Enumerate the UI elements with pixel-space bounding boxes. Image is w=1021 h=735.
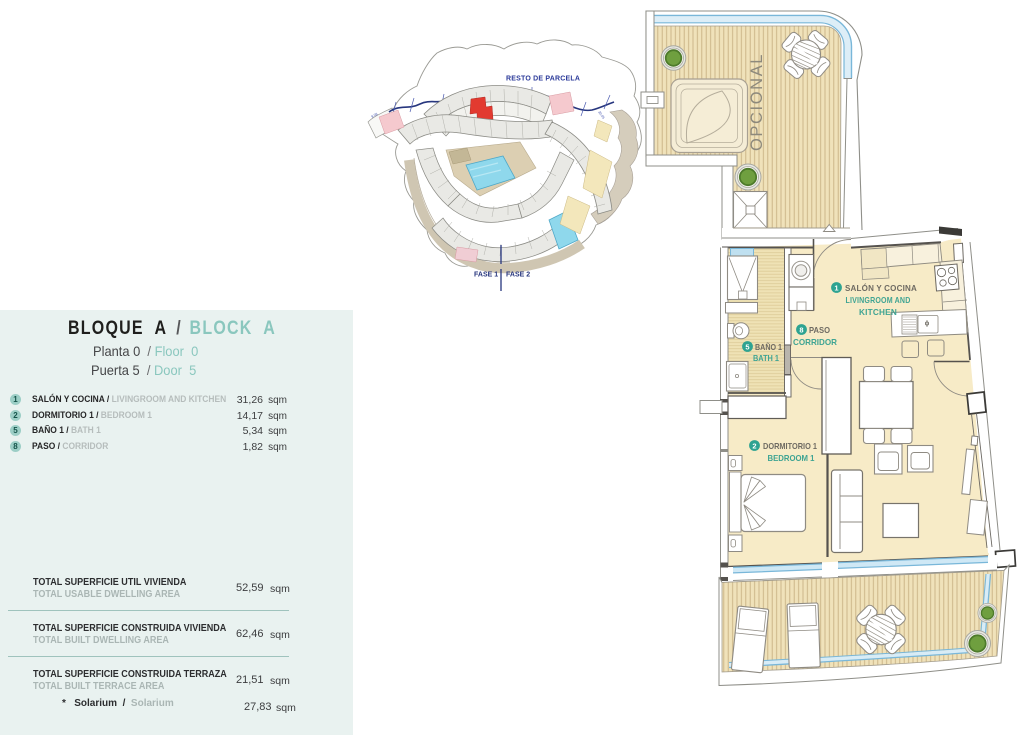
svg-text:8: 8 — [799, 325, 803, 334]
svg-text:5: 5 — [745, 342, 749, 351]
svg-text:LIVINGROOM AND: LIVINGROOM AND — [846, 295, 911, 305]
svg-text:2: 2 — [752, 441, 756, 450]
svg-text:CORRIDOR: CORRIDOR — [793, 337, 837, 347]
svg-text:FASE 2: FASE 2 — [506, 272, 530, 279]
svg-text:FASE 1: FASE 1 — [474, 272, 498, 279]
svg-text:RESTO DE PARCELA: RESTO DE PARCELA — [506, 76, 580, 83]
svg-text:SALÓN Y COCINA: SALÓN Y COCINA — [845, 282, 917, 293]
svg-text:DORMITORIO 1: DORMITORIO 1 — [763, 441, 817, 451]
svg-text:BATH 1: BATH 1 — [753, 353, 779, 363]
svg-text:OPCIONAL: OPCIONAL — [748, 53, 766, 151]
svg-text:BAÑO 1: BAÑO 1 — [755, 342, 782, 352]
svg-text:1: 1 — [834, 283, 838, 292]
svg-text:PASO: PASO — [809, 325, 830, 335]
svg-text:KITCHEN: KITCHEN — [859, 307, 897, 317]
svg-text:BEDROOM 1: BEDROOM 1 — [768, 453, 815, 463]
